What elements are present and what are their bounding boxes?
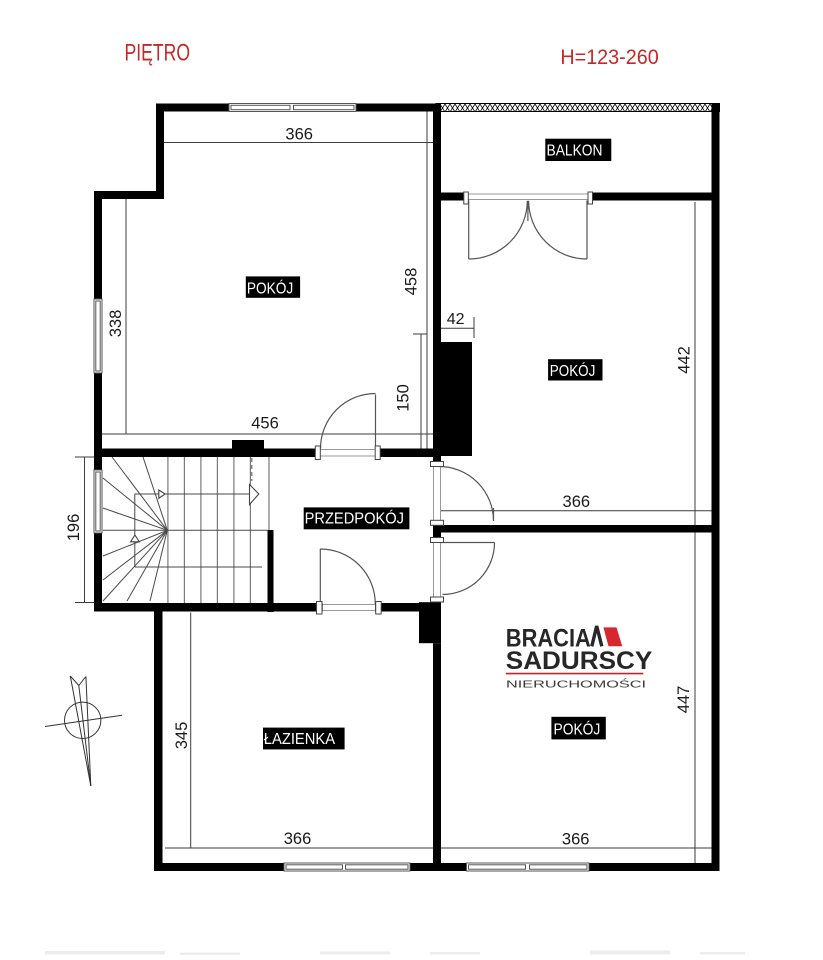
svg-text:POKÓJ: POKÓJ <box>554 722 601 739</box>
svg-text:NIERUCHOMOŚCI: NIERUCHOMOŚCI <box>506 678 646 691</box>
svg-text:PRZEDPOKÓJ: PRZEDPOKÓJ <box>305 510 404 527</box>
svg-text:366: 366 <box>285 126 313 144</box>
svg-text:150: 150 <box>394 384 412 412</box>
svg-text:442: 442 <box>675 346 693 374</box>
svg-text:PIĘTRO: PIĘTRO <box>125 40 191 67</box>
svg-text:POKÓJ: POKÓJ <box>247 280 293 297</box>
svg-text:366: 366 <box>284 830 312 848</box>
svg-text:42: 42 <box>447 311 465 328</box>
svg-text:345: 345 <box>173 722 191 750</box>
svg-text:366: 366 <box>563 493 591 511</box>
svg-text:POKÓJ: POKÓJ <box>550 363 596 380</box>
svg-text:ŁAZIENKA: ŁAZIENKA <box>264 731 336 748</box>
svg-text:447: 447 <box>675 686 693 714</box>
svg-text:SADURSCY: SADURSCY <box>506 647 653 675</box>
svg-text:366: 366 <box>562 831 590 849</box>
svg-text:458: 458 <box>403 268 421 296</box>
svg-text:456: 456 <box>251 415 279 433</box>
svg-text:H=123-260: H=123-260 <box>560 45 658 69</box>
svg-text:196: 196 <box>65 514 83 542</box>
svg-text:338: 338 <box>107 310 125 338</box>
svg-text:BALKON: BALKON <box>547 143 603 160</box>
